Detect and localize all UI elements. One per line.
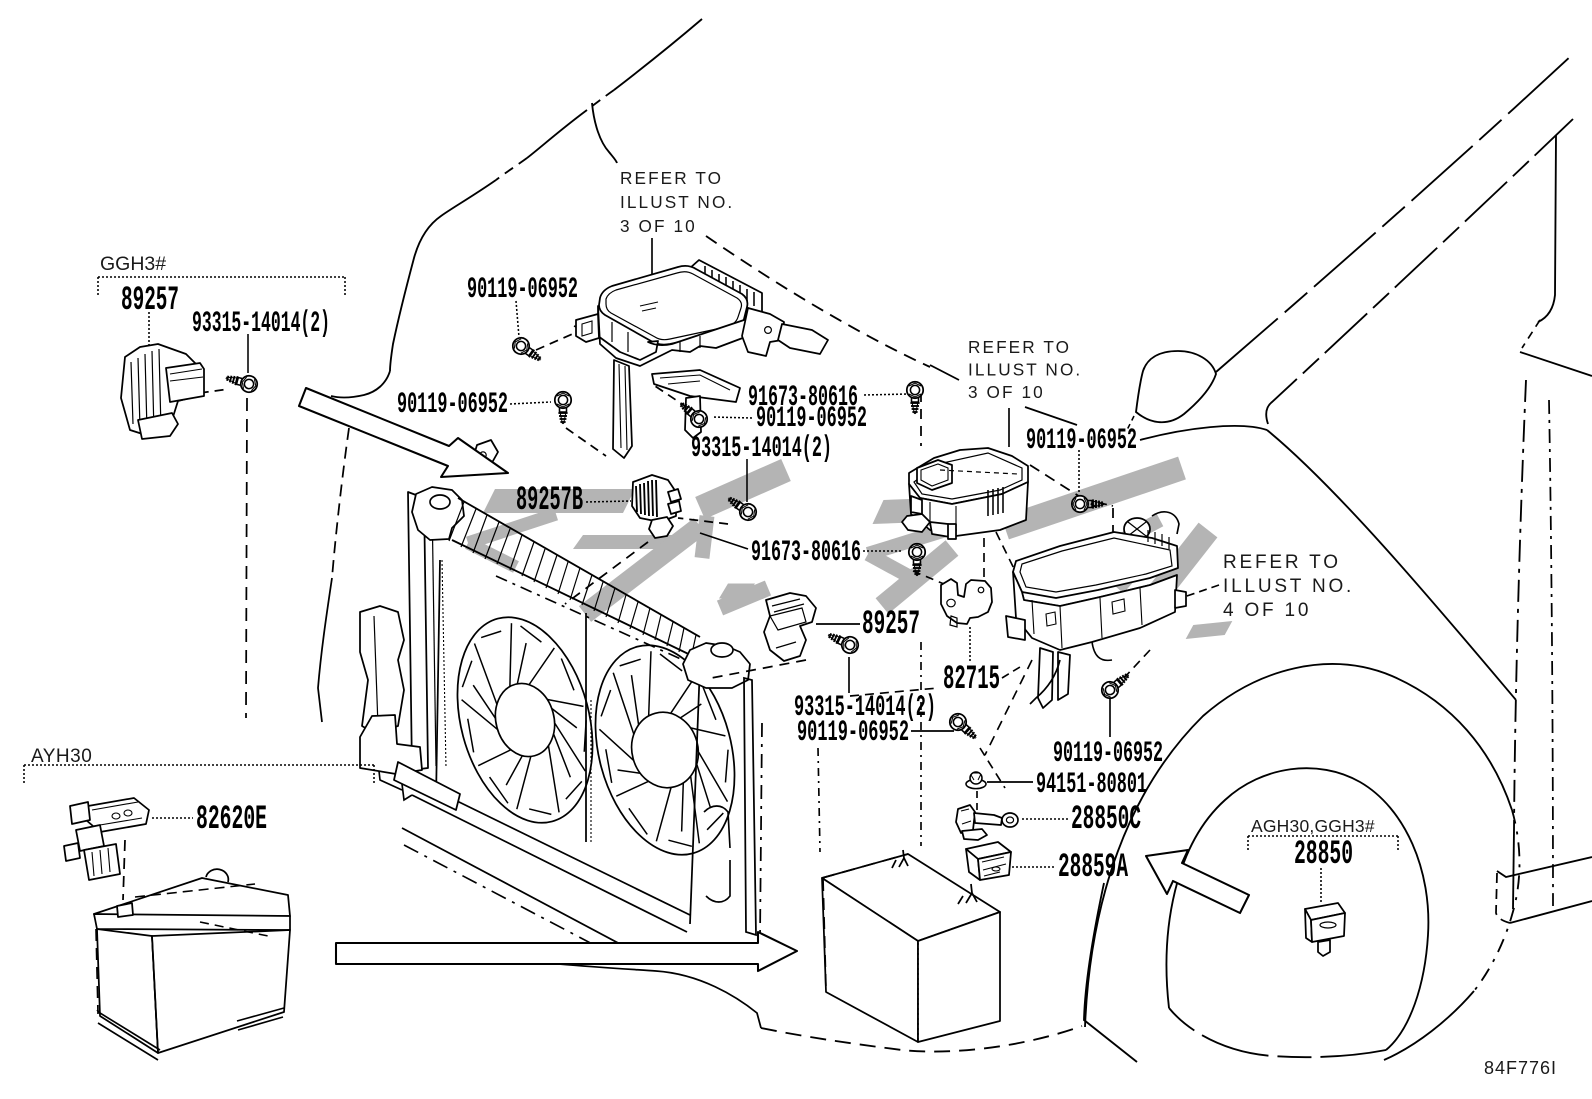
svg-text:90119-06952: 90119-06952 — [1053, 737, 1163, 770]
svg-text:82620E: 82620E — [196, 799, 267, 839]
svg-text:91673-80616: 91673-80616 — [751, 536, 861, 569]
svg-text:89257B: 89257B — [516, 480, 583, 520]
svg-text:89257: 89257 — [862, 604, 920, 644]
svg-text:GGH3#: GGH3# — [100, 253, 166, 275]
svg-text:90119-06952: 90119-06952 — [1026, 424, 1137, 457]
svg-text:28859A: 28859A — [1058, 847, 1128, 887]
svg-text:90119-06952: 90119-06952 — [397, 388, 508, 421]
svg-text:90119-06952: 90119-06952 — [797, 716, 909, 749]
svg-text:89257: 89257 — [121, 280, 179, 320]
svg-text:28850C: 28850C — [1071, 799, 1141, 839]
svg-text:84F776I: 84F776I — [1484, 1058, 1557, 1078]
svg-text:90119-06952: 90119-06952 — [467, 273, 578, 306]
svg-text:28850: 28850 — [1294, 834, 1353, 874]
svg-text:90119-06952: 90119-06952 — [756, 402, 867, 435]
svg-text:93315-14014(2): 93315-14014(2) — [192, 307, 330, 340]
svg-text:82715: 82715 — [943, 659, 1000, 699]
svg-text:AYH30: AYH30 — [31, 746, 92, 767]
svg-text:94151-80801: 94151-80801 — [1036, 768, 1147, 801]
svg-text:93315-14014(2): 93315-14014(2) — [691, 432, 832, 465]
